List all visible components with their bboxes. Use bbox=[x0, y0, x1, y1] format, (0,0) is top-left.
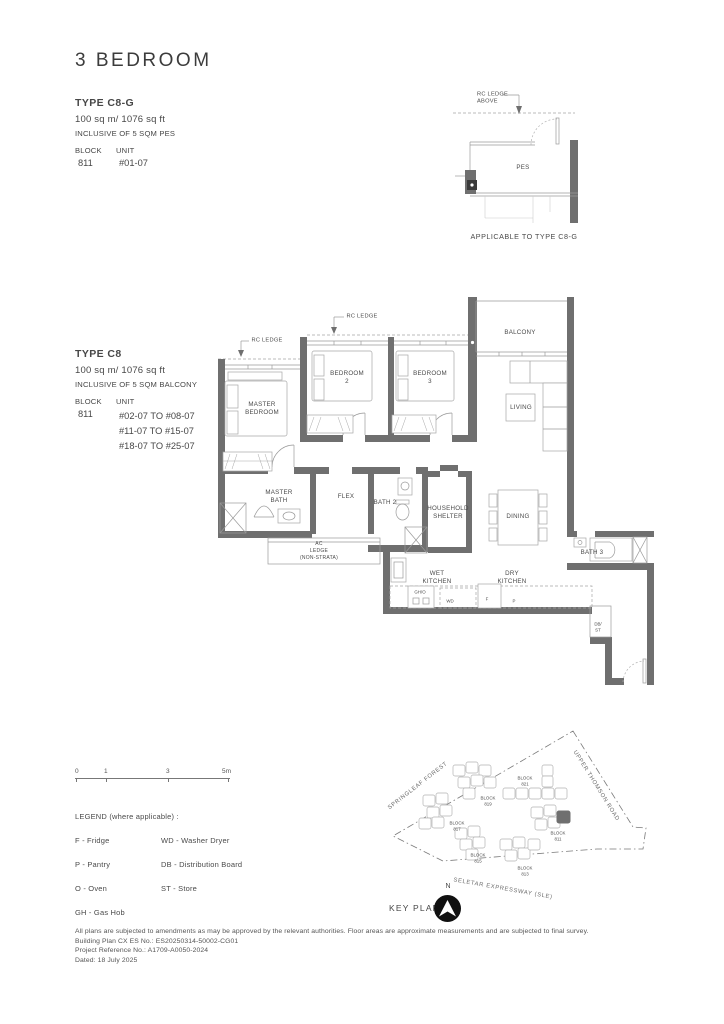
label-household-shelter: HOUSEHOLD SHELTER bbox=[427, 505, 468, 521]
applicable-caption: APPLICABLE TO TYPE C8-G bbox=[471, 232, 578, 241]
label-flex: FLEX bbox=[338, 493, 354, 501]
label-bedroom-3: BEDROOM 3 bbox=[413, 370, 447, 386]
block-label-821: BLOCK 821 bbox=[518, 776, 533, 787]
scale-0: 0 bbox=[75, 768, 79, 775]
label-ac-ledge: AC LEDGE (NON-STRATA) bbox=[300, 541, 338, 561]
footer-line-4: Dated: 18 July 2025 bbox=[75, 956, 589, 966]
block-label: BLOCK bbox=[75, 146, 116, 155]
scale-bar: 0 1 3 5m bbox=[75, 768, 231, 784]
label-dining: DINING bbox=[506, 513, 529, 521]
block-value: 811 bbox=[75, 409, 119, 454]
label-db-st: DB/ ST bbox=[594, 622, 601, 633]
footer-line-3: Project Reference No.: A1709-A0050-2024 bbox=[75, 946, 589, 956]
type-c8-info: TYPE C8 100 sq m/ 1076 sq ft INCLUSIVE O… bbox=[75, 348, 197, 454]
type-c8-inclusive: INCLUSIVE OF 5 SQM BALCONY bbox=[75, 380, 197, 389]
floorplan-page: 3 BEDROOM TYPE C8-G 100 sq m/ 1076 sq ft… bbox=[0, 0, 724, 1024]
pes-lower-unit-hint bbox=[485, 196, 550, 223]
block-label: BLOCK bbox=[75, 397, 116, 406]
label-living: LIVING bbox=[510, 404, 532, 412]
type-c8g-inclusive: INCLUSIVE OF 5 SQM PES bbox=[75, 129, 175, 138]
label-pantry: P bbox=[513, 598, 516, 604]
label-bath-3: BATH 3 bbox=[581, 549, 604, 557]
legend-item-fridge: F - Fridge bbox=[75, 836, 161, 845]
block-811-cluster bbox=[531, 805, 570, 830]
scale-1: 1 bbox=[104, 768, 108, 775]
scale-5m: 5m bbox=[222, 768, 231, 775]
block-817-cluster bbox=[419, 793, 452, 829]
block-value: 811 bbox=[75, 158, 119, 168]
legend-item-pantry: P - Pantry bbox=[75, 860, 161, 869]
pes-door bbox=[531, 118, 559, 145]
label-bath-2: BATH 2 bbox=[374, 499, 397, 507]
legend: LEGEND (where applicable) : F - Fridge W… bbox=[75, 812, 242, 917]
footer-disclaimer: All plans are subjected to amendments as… bbox=[75, 927, 589, 966]
label-wd: WD bbox=[446, 598, 453, 604]
north-indicator bbox=[434, 895, 461, 922]
unit-label: UNIT bbox=[116, 397, 135, 406]
label-rc-ledge-left: RC LEDGE bbox=[251, 337, 282, 344]
north-n-label: N bbox=[440, 883, 456, 890]
legend-item-gas-hob: GH - Gas Hob bbox=[75, 908, 161, 917]
block-label-817: BLOCK 817 bbox=[450, 821, 465, 832]
legend-title: LEGEND (where applicable) : bbox=[75, 812, 242, 821]
legend-item-washer-dryer: WD - Washer Dryer bbox=[161, 836, 230, 845]
key-plan-label: KEY PLAN bbox=[389, 903, 440, 913]
label-rc-ledge-above: RC LEDGE ABOVE bbox=[477, 92, 508, 107]
kitchen-fixtures bbox=[390, 558, 592, 608]
scale-3: 3 bbox=[166, 768, 170, 775]
type-c8g-name: TYPE C8-G bbox=[75, 97, 175, 109]
label-bedroom-2: BEDROOM 2 bbox=[330, 370, 364, 386]
block-813-cluster bbox=[500, 837, 540, 861]
block-label-813: BLOCK 813 bbox=[518, 866, 533, 877]
page-title: 3 BEDROOM bbox=[75, 50, 212, 72]
label-wet-kitchen: WET KITCHEN bbox=[423, 570, 452, 586]
label-gh-o: GH/O bbox=[414, 589, 425, 595]
block-819-cluster bbox=[453, 762, 496, 799]
type-c8g-area: 100 sq m/ 1076 sq ft bbox=[75, 114, 175, 125]
scale-bar-line bbox=[75, 778, 230, 779]
label-master-bath: MASTER BATH bbox=[265, 489, 292, 505]
pes-walls bbox=[455, 140, 578, 223]
legend-item-oven: O - Oven bbox=[75, 884, 161, 893]
label-dry-kitchen: DRY KITCHEN bbox=[498, 570, 527, 586]
label-master-bedroom: MASTER BEDROOM bbox=[245, 401, 279, 417]
legend-item-store: ST - Store bbox=[161, 884, 197, 893]
block-821-cluster bbox=[503, 765, 567, 799]
block-label-811: BLOCK 811 bbox=[551, 831, 566, 842]
label-pes-room: PES bbox=[516, 164, 529, 172]
highlighted-unit bbox=[557, 811, 570, 823]
block-label-815: BLOCK 815 bbox=[471, 853, 486, 864]
type-c8-area: 100 sq m/ 1076 sq ft bbox=[75, 365, 197, 376]
footer-line-1: All plans are subjected to amendments as… bbox=[75, 927, 589, 937]
label-balcony: BALCONY bbox=[504, 329, 535, 337]
unit-label: UNIT bbox=[116, 146, 135, 155]
unit-value: #01-07 bbox=[119, 158, 148, 168]
type-c8-name: TYPE C8 bbox=[75, 348, 197, 360]
north-arrow-icon bbox=[434, 895, 461, 922]
block-label-819: BLOCK 819 bbox=[481, 796, 496, 807]
footer-line-2: Building Plan CX ES No.: ES20250314-5000… bbox=[75, 937, 589, 947]
pes-mini-plan bbox=[445, 85, 590, 240]
label-rc-ledge-top: RC LEDGE bbox=[346, 313, 377, 320]
type-c8g-info: TYPE C8-G 100 sq m/ 1076 sq ft INCLUSIVE… bbox=[75, 97, 175, 168]
legend-item-distribution-board: DB - Distribution Board bbox=[161, 860, 242, 869]
unit-ranges: #02-07 TO #08-07 #11-07 TO #15-07 #18-07… bbox=[119, 409, 195, 454]
label-fridge: F bbox=[486, 596, 489, 602]
pes-rc-ledge bbox=[453, 95, 575, 114]
